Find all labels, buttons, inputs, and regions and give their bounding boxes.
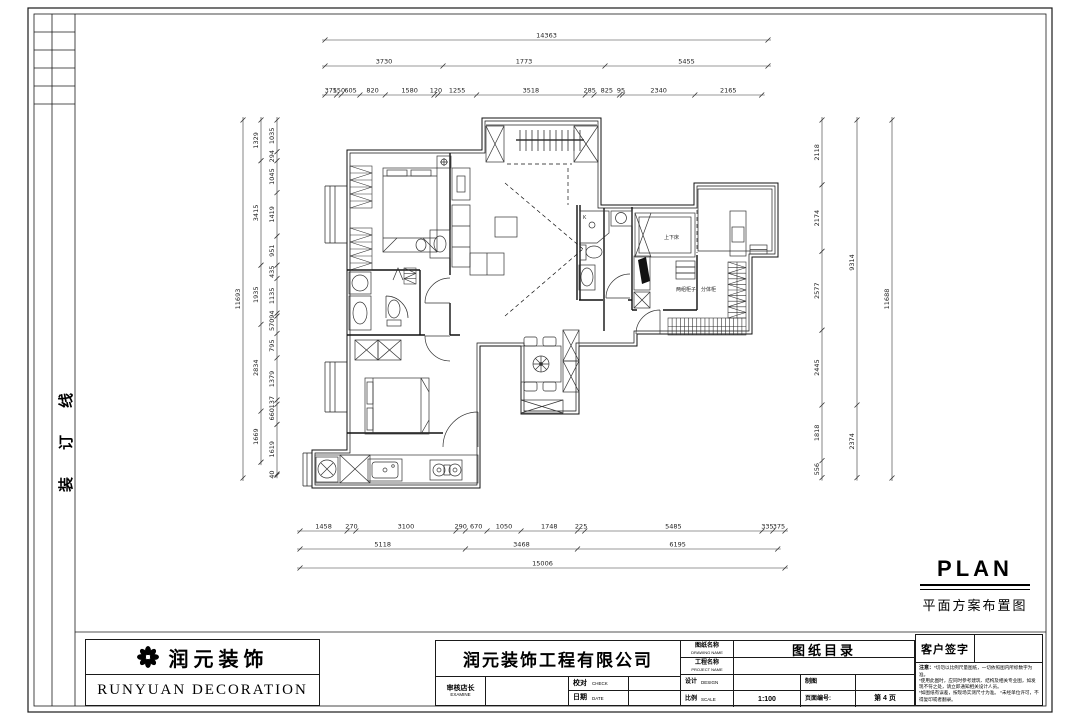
svg-text:1619: 1619 [268,441,276,458]
svg-text:270: 270 [345,523,357,531]
project-name-value [734,658,914,675]
svg-text:2165: 2165 [720,87,737,95]
check-label: 校对 [573,680,587,688]
svg-text:2445: 2445 [813,359,821,376]
company-name: 润元装饰工程有限公司 [463,646,653,671]
svg-text:1935: 1935 [252,286,260,303]
note-line: *使用此图时，应同时参考建筑、结构及相关专业图，如发现不符之处，请立即通知相关设… [919,678,1036,689]
design-value [734,675,801,691]
svg-text:14363: 14363 [536,32,557,40]
svg-text:1669: 1669 [252,428,260,445]
draft-label: 制图 [805,679,817,686]
plan-text-labels: 上下床两组柜子，分体柜K [583,215,716,293]
logo-name-en: RUNYUAN DECORATION [97,682,308,699]
sheet-frame [28,8,1052,712]
svg-text:1748: 1748 [541,523,558,531]
date-label: 日期 [573,694,587,702]
binding-line-char: 线 [55,392,71,408]
walls [312,118,778,488]
notes-label: 注意： [919,665,934,671]
svg-text:951: 951 [268,244,276,256]
plan-title-en: PLAN [900,556,1050,582]
svg-text:2174: 2174 [813,210,821,227]
draft-value [856,675,914,691]
svg-text:9314: 9314 [848,254,856,271]
plan-title-block: PLAN 平面方案布置图 [900,556,1050,614]
drawing-sheet: 1436337301773545537515060582015801201255… [0,0,1080,720]
svg-text:2577: 2577 [813,282,821,299]
svg-text:1329: 1329 [252,132,260,149]
svg-text:825: 825 [601,87,613,95]
svg-text:1773: 1773 [516,58,533,66]
binding-line-char: 订 [55,434,71,450]
date-label-en: DATE [592,696,604,701]
svg-text:435: 435 [268,266,276,278]
page-number-label: 页面编号: [805,696,831,703]
svg-text:3518: 3518 [523,87,540,95]
door-swings [386,274,660,447]
drawing-name-label-en: DRAWING NAME [691,650,723,655]
design-label: 设计 [685,679,697,686]
svg-text:150: 150 [333,87,345,95]
check-value [629,677,681,691]
page-number-value: 第 4 页 [874,695,896,703]
plan-label-shower_k: K [583,215,587,221]
svg-text:1050: 1050 [496,523,513,531]
scale-label-en: SCALE [701,697,716,702]
svg-text:820: 820 [366,87,378,95]
svg-text:285: 285 [583,87,595,95]
svg-text:15006: 15006 [532,560,553,568]
svg-text:1035: 1035 [268,128,276,145]
title-block-main: 润元装饰工程有限公司 审核店长 EXAMINE 校对 CHECK 日期 DATE… [435,640,915,706]
revision-strip [34,32,75,104]
svg-text:1379: 1379 [268,371,276,388]
svg-text:95: 95 [617,87,625,95]
svg-text:290: 290 [455,523,467,531]
plan-title-rule [920,584,1030,590]
logo-name-zh: 润元装饰 [169,643,269,672]
logo-block: 润元装饰 RUNYUAN DECORATION [85,639,320,706]
svg-text:94: 94 [268,311,276,319]
date-value [629,691,681,705]
scale-value: 1:100 [758,696,776,703]
svg-text:1045: 1045 [268,168,276,185]
svg-text:1818: 1818 [813,425,821,442]
plan-label-cabinets: 两组柜子，分体柜 [676,286,716,293]
hatch-patterns [340,126,746,483]
svg-text:2374: 2374 [848,433,856,450]
audit-label: 审核店长 [447,685,475,693]
svg-text:5485: 5485 [665,523,682,531]
svg-text:294: 294 [268,150,276,162]
svg-text:1580: 1580 [401,87,418,95]
svg-text:375: 375 [773,523,785,531]
svg-text:120: 120 [430,87,442,95]
audit-label-en: EXAMINE [450,692,470,697]
svg-text:1135: 1135 [268,288,276,305]
svg-text:6195: 6195 [669,541,686,549]
svg-text:795: 795 [268,339,276,351]
svg-text:5118: 5118 [374,541,391,549]
plan-label-bunk_bed: 上下床 [664,234,679,241]
svg-text:670: 670 [470,523,482,531]
svg-text:3100: 3100 [398,523,415,531]
furniture [315,140,767,483]
project-name-label: 工程名称 [695,660,719,667]
svg-text:11693: 11693 [234,289,242,310]
svg-text:5455: 5455 [678,58,695,66]
svg-text:2118: 2118 [813,144,821,161]
binding-line-char: 装 [55,476,71,492]
svg-text:3468: 3468 [513,541,530,549]
svg-text:660: 660 [268,408,276,420]
svg-text:3730: 3730 [376,58,393,66]
notes-box: 注意：*切勿以比例尺量图纸，一切依照图内所标数字为准。 *使用此图时，应同时参考… [916,663,1042,705]
note-line: *如图纸有误差，按现场实测尺寸为准。 [919,690,999,695]
svg-text:605: 605 [344,87,356,95]
runyuan-logo-icon [137,646,159,668]
customer-sign-label: 客户签字 [916,635,975,662]
dimension-lines: 1436337301773545537515060582015801201255… [234,32,895,571]
drawing-title: 图纸目录 [792,640,856,659]
svg-text:40: 40 [268,470,276,478]
svg-text:570: 570 [268,319,276,331]
svg-text:2340: 2340 [650,87,667,95]
svg-text:3415: 3415 [252,205,260,222]
svg-text:1458: 1458 [315,523,332,531]
check-label-en: CHECK [592,681,608,686]
svg-text:556: 556 [813,463,821,475]
customer-block: 客户签字 注意：*切勿以比例尺量图纸，一切依照图内所标数字为准。 *使用此图时，… [915,634,1043,706]
scale-label: 比例 [685,696,697,703]
audit-value [486,677,569,705]
svg-text:225: 225 [575,523,587,531]
svg-text:1419: 1419 [268,206,276,223]
svg-text:11688: 11688 [883,289,891,310]
project-name-label-en: PROJECT NAME [691,667,722,672]
plan-title-zh: 平面方案布置图 [900,595,1050,614]
svg-text:1255: 1255 [449,87,466,95]
design-label-en: DESIGN [701,680,718,685]
note-line: *切勿以比例尺量图纸，一切依照图内所标数字为准。 [919,665,1032,677]
svg-text:2834: 2834 [252,359,260,376]
svg-text:137: 137 [268,396,276,408]
drawing-name-label: 图纸名称 [695,643,719,650]
